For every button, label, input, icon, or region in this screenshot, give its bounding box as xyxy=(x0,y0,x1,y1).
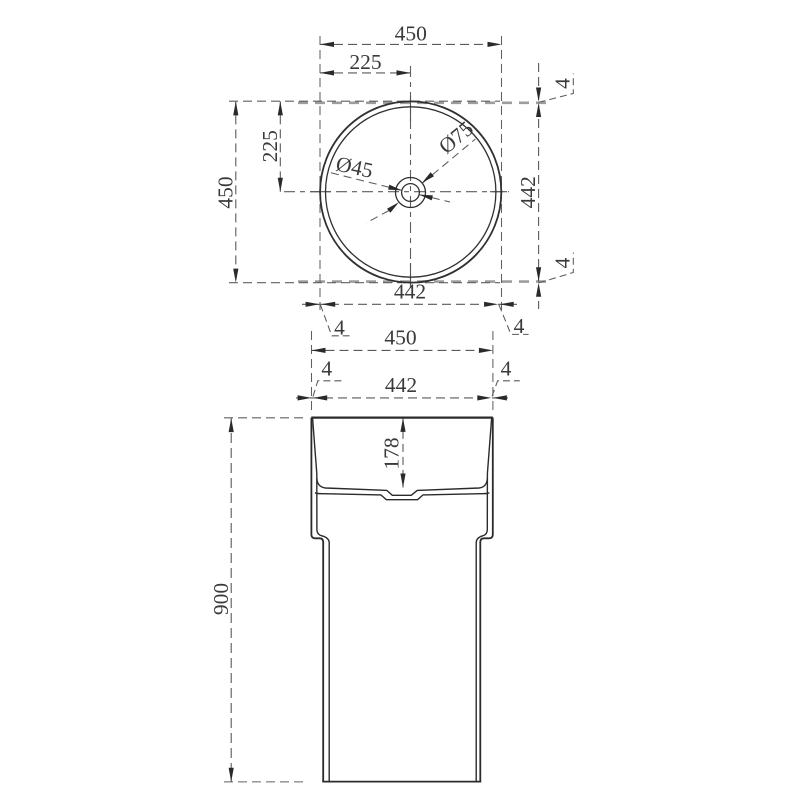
svg-text:442: 442 xyxy=(516,176,540,208)
svg-text:4: 4 xyxy=(334,316,345,340)
svg-text:450: 450 xyxy=(213,176,237,208)
svg-text:225: 225 xyxy=(349,50,381,74)
svg-text:442: 442 xyxy=(385,373,417,397)
svg-text:900: 900 xyxy=(209,583,233,615)
svg-text:4: 4 xyxy=(501,357,512,381)
svg-text:Ø75: Ø75 xyxy=(434,116,478,158)
svg-text:442: 442 xyxy=(394,280,426,304)
svg-text:4: 4 xyxy=(551,257,575,268)
svg-text:450: 450 xyxy=(384,326,416,350)
svg-text:178: 178 xyxy=(380,437,404,469)
svg-text:Ø45: Ø45 xyxy=(334,152,375,183)
svg-text:4: 4 xyxy=(551,78,575,89)
svg-text:4: 4 xyxy=(321,357,332,381)
svg-text:450: 450 xyxy=(395,22,427,46)
svg-text:225: 225 xyxy=(258,130,282,162)
svg-text:4: 4 xyxy=(514,314,525,338)
